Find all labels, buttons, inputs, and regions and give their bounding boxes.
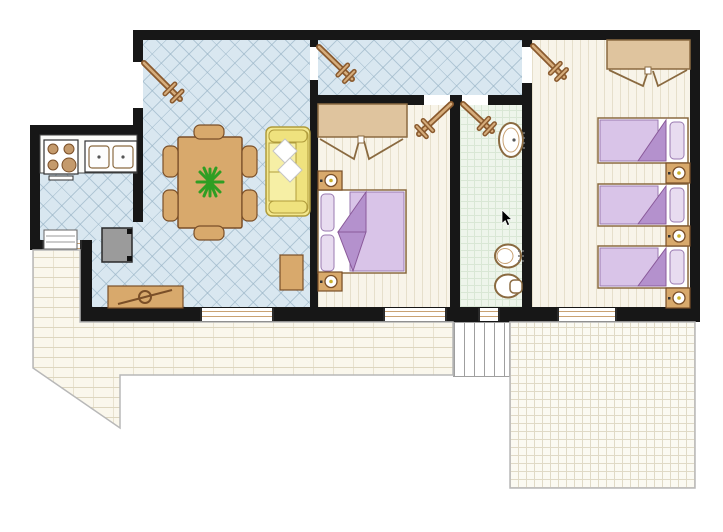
bathroom-window (478, 308, 500, 321)
wall-entrance-lower (133, 108, 143, 125)
twin-window (557, 308, 617, 321)
room-entrance-hall-floor (318, 40, 522, 95)
wall-hall-bottom-a (318, 95, 424, 105)
room-bathroom-floor (460, 105, 522, 307)
wall-kitchen-left (30, 135, 40, 240)
wall-bathroom-twin-divider (522, 83, 532, 307)
master-window (383, 308, 447, 321)
wall-right (690, 40, 700, 322)
wall-twin-upper (522, 40, 532, 47)
room-kitchen-floor (40, 135, 133, 240)
wall-living-hall-upper (310, 40, 318, 47)
room-master-bedroom-floor (318, 105, 450, 307)
room-twin-bedroom-floor (532, 40, 690, 307)
terrace-steps (453, 322, 510, 377)
wall-lower-left (80, 250, 92, 307)
wall-kitchen-top (30, 125, 143, 135)
wall-hall-bottom-b (450, 95, 462, 105)
terrace-right-floor (510, 322, 695, 488)
living-window (200, 308, 274, 321)
kitchen-window (42, 240, 82, 250)
wall-kitchen-living-divider (133, 125, 143, 222)
floor-plan-canvas (0, 0, 723, 532)
wall-top (133, 30, 700, 40)
wall-living-master-divider (310, 80, 318, 307)
wall-entrance-upper (133, 40, 143, 62)
wall-master-bathroom-divider (450, 105, 460, 307)
